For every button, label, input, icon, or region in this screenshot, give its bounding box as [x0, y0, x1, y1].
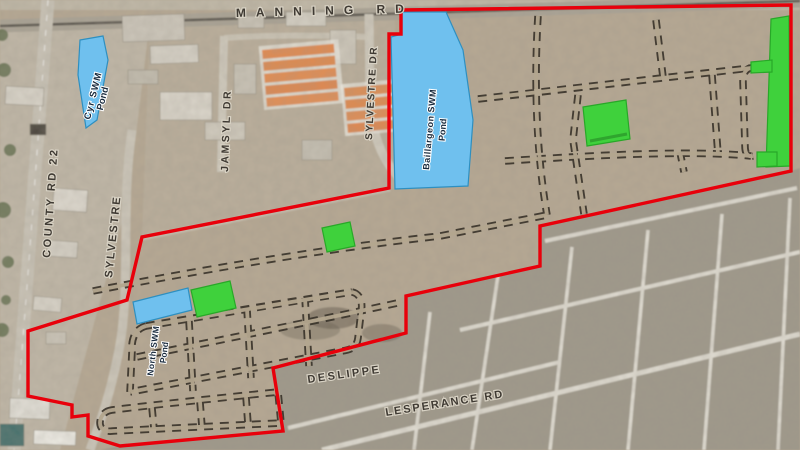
svg-text:Pond: Pond: [437, 118, 449, 141]
site-plan-map: MANNING RD COUNTY RD 22 SYLVESTRE SYLVES…: [0, 0, 800, 450]
park-connector-north: [751, 60, 772, 73]
park-connector-south: [757, 152, 777, 167]
park-parcel-mid: [322, 222, 355, 252]
aerial-map-svg: MANNING RD COUNTY RD 22 SYLVESTRE SYLVES…: [0, 0, 800, 450]
